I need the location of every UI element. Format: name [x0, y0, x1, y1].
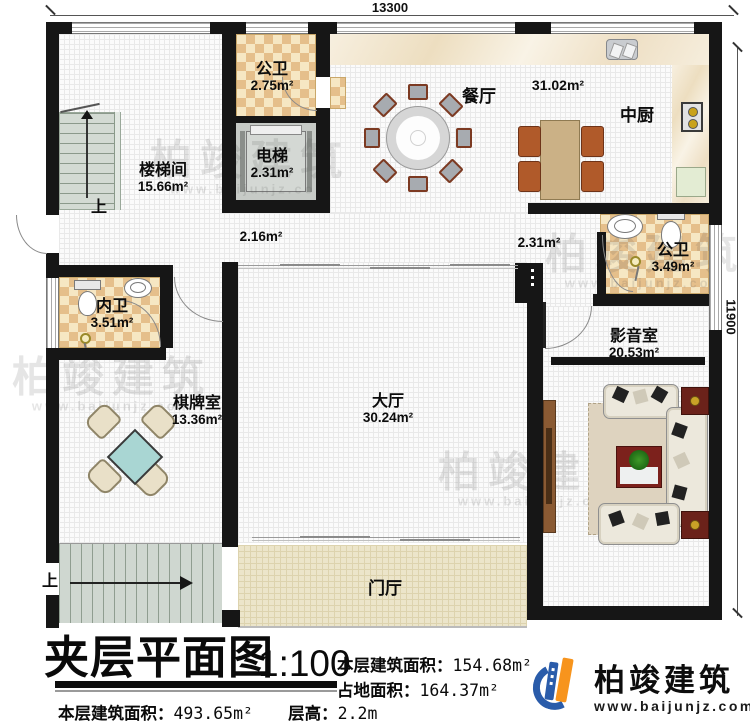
wall	[316, 108, 330, 213]
wall	[46, 595, 59, 628]
window	[246, 22, 308, 34]
room-area: 3.49m²	[652, 260, 695, 275]
wall	[593, 294, 722, 306]
foyer-edge-line	[238, 626, 527, 628]
room-area: 13.36m²	[172, 413, 222, 428]
kitchen-chair	[581, 161, 604, 192]
room-area: 3.51m²	[91, 316, 134, 331]
wall	[527, 294, 543, 606]
room-label-chess: 棋牌室 13.36m²	[172, 396, 222, 428]
panel-dot	[531, 276, 534, 279]
floor-kitchen-counter-top	[330, 34, 709, 65]
sink-basin	[614, 219, 636, 233]
wall	[308, 22, 337, 34]
kitchen-chair	[518, 126, 541, 157]
company-name: 柏竣建筑	[594, 665, 734, 696]
kitchen-sink-icon	[606, 39, 638, 60]
room-label-stairwell: 楼梯间 15.66m²	[138, 163, 188, 195]
floor-bath-top-doorway	[330, 77, 346, 109]
elevator-rail	[307, 131, 312, 192]
dimension-tick	[45, 5, 56, 16]
room-label-elevator: 电梯 2.31m²	[251, 149, 294, 181]
area-label-corridor-left: 2.16m²	[240, 229, 283, 244]
sliding-door-panel	[280, 264, 340, 266]
sink-basin	[609, 43, 624, 60]
area-label-dining-kitchen: 31.02m²	[532, 77, 584, 93]
room-area: 20.53m²	[609, 346, 659, 361]
sink-basin	[622, 43, 637, 60]
total-area-row: 本层建筑面积：493.65m² 层高：2.2m	[58, 700, 377, 724]
title-underline	[55, 681, 337, 688]
room-area: 30.24m²	[363, 411, 413, 426]
pillow	[655, 511, 670, 526]
window	[337, 22, 515, 34]
room-label-hall: 大厅 30.24m²	[363, 394, 413, 426]
kitchen-table	[540, 120, 580, 200]
stair-direction-line	[86, 118, 88, 198]
room-name: 电梯	[251, 149, 294, 166]
side-table-lamp	[690, 520, 700, 530]
door-arc	[16, 215, 47, 254]
plan-title: 夹层平面图	[44, 635, 274, 680]
company-website: www.baijunjz.com	[594, 698, 750, 714]
stair-rail	[114, 112, 120, 210]
room-area: 2.75m²	[251, 79, 294, 94]
story-height-value: 2.2m	[338, 704, 378, 723]
kitchen-chair	[581, 126, 604, 157]
side-table-lamp	[690, 396, 700, 406]
wall	[222, 262, 238, 547]
stair-up-label: 上	[42, 567, 58, 591]
electric-panel	[515, 263, 543, 303]
panel-dot	[531, 269, 534, 272]
dining-table-center	[410, 130, 426, 146]
kitchen-chair	[518, 161, 541, 192]
room-name: 公卫	[251, 62, 294, 79]
window	[551, 22, 694, 34]
wall	[515, 22, 551, 34]
wall	[222, 610, 240, 627]
floor-area-row: 本层建筑面积：154.68m²	[337, 652, 532, 676]
room-name: 棋牌室	[172, 396, 222, 413]
dining-chair	[408, 176, 428, 192]
burner	[688, 107, 698, 117]
dining-chair	[364, 128, 380, 148]
wall	[236, 116, 316, 123]
room-name: 楼梯间	[138, 163, 188, 180]
wall	[210, 22, 246, 34]
footprint-label: 占地面积：	[337, 682, 420, 700]
elevator-door	[250, 125, 302, 135]
room-label-foyer: 门厅	[368, 574, 402, 599]
floor-dining-kitchen	[330, 62, 672, 213]
wall	[46, 348, 59, 563]
burner	[688, 119, 698, 129]
room-area: 15.66m²	[138, 180, 188, 195]
toilet-tank	[74, 280, 101, 290]
area-label-corridor-right: 2.31m²	[518, 235, 561, 250]
wall	[222, 34, 236, 213]
room-name: 大厅	[363, 394, 413, 411]
dining-chair	[456, 128, 472, 148]
wall	[160, 265, 173, 348]
story-height-label: 层高：	[288, 705, 338, 723]
wall	[59, 348, 166, 360]
room-name: 公卫	[652, 243, 695, 260]
plant-icon	[629, 450, 649, 470]
footprint-area-row: 占地面积：164.37m²	[337, 677, 499, 701]
room-label-bath-inner: 内卫 3.51m²	[91, 299, 134, 331]
stair-up-arrow	[81, 110, 93, 119]
panel-dot	[531, 283, 534, 286]
sliding-door-panel	[450, 264, 510, 266]
wall	[528, 203, 722, 214]
wall	[709, 330, 722, 620]
room-label-kitchen: 中厨	[620, 101, 654, 126]
window	[46, 278, 59, 348]
stove-icon	[681, 102, 703, 132]
window	[72, 22, 210, 34]
sliding-door-panel	[400, 539, 470, 541]
room-label-dining: 餐厅	[462, 82, 496, 107]
room-label-bath-right: 公卫 3.49m²	[652, 243, 695, 275]
company-logo-icon	[531, 656, 585, 716]
room-area: 2.31m²	[251, 166, 294, 181]
sliding-door-panel	[370, 267, 430, 269]
wall	[46, 22, 59, 215]
dimension-tick	[728, 5, 739, 16]
sliding-door	[252, 537, 520, 541]
dimension-right-label: 11900	[724, 299, 739, 334]
elevator-rail	[240, 131, 245, 192]
stair-up-label: 上	[91, 193, 107, 217]
room-label-media: 影音室 20.53m²	[609, 329, 659, 361]
dimension-line-top	[50, 15, 734, 16]
total-area-label: 本层建筑面积：	[58, 705, 174, 723]
floor-plan-page: 13300 11900 柏竣建筑 www.baijunjz.com 柏竣建筑 w…	[0, 0, 750, 728]
dimension-top-label: 13300	[372, 0, 408, 15]
sink-basin	[130, 282, 146, 293]
room-name: 影音室	[609, 329, 659, 346]
wall	[709, 22, 722, 225]
room-label-bath-top: 公卫 2.75m²	[251, 62, 294, 94]
tv-cabinet-top	[546, 428, 552, 504]
floor-area-value: 154.68m²	[453, 656, 532, 675]
title-underline-shadow	[55, 690, 337, 692]
wall	[316, 34, 330, 77]
stair-up-arrow	[180, 576, 193, 590]
floor-area-label: 本层建筑面积：	[337, 657, 453, 675]
wall	[527, 606, 722, 620]
wall	[222, 200, 330, 213]
stair-direction-line	[70, 582, 182, 584]
wall	[46, 265, 173, 277]
dining-chair	[408, 84, 428, 100]
window	[709, 225, 722, 330]
footprint-value: 164.37m²	[420, 681, 499, 700]
total-area-value: 493.65m²	[174, 704, 253, 723]
sliding-door-panel	[300, 536, 370, 538]
fridge-icon	[676, 167, 706, 197]
room-name: 内卫	[91, 299, 134, 316]
